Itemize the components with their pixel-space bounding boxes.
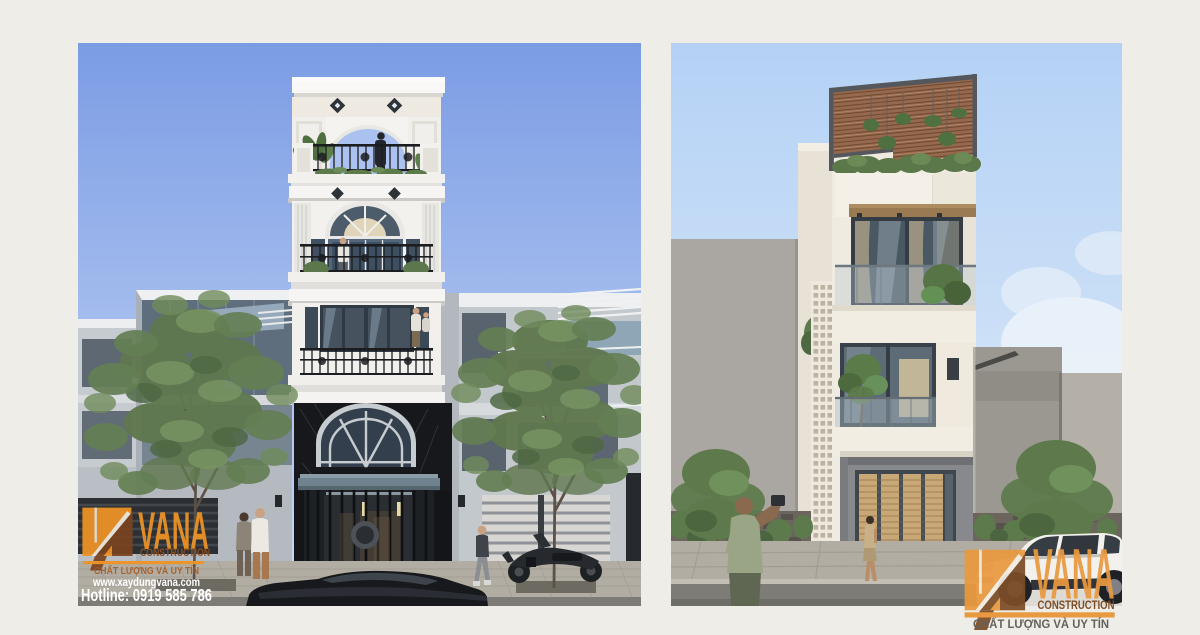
svg-text:CHẤT LƯỢNG VÀ UY TÍN: CHẤT LƯỢNG VÀ UY TÍN [973,618,1109,630]
